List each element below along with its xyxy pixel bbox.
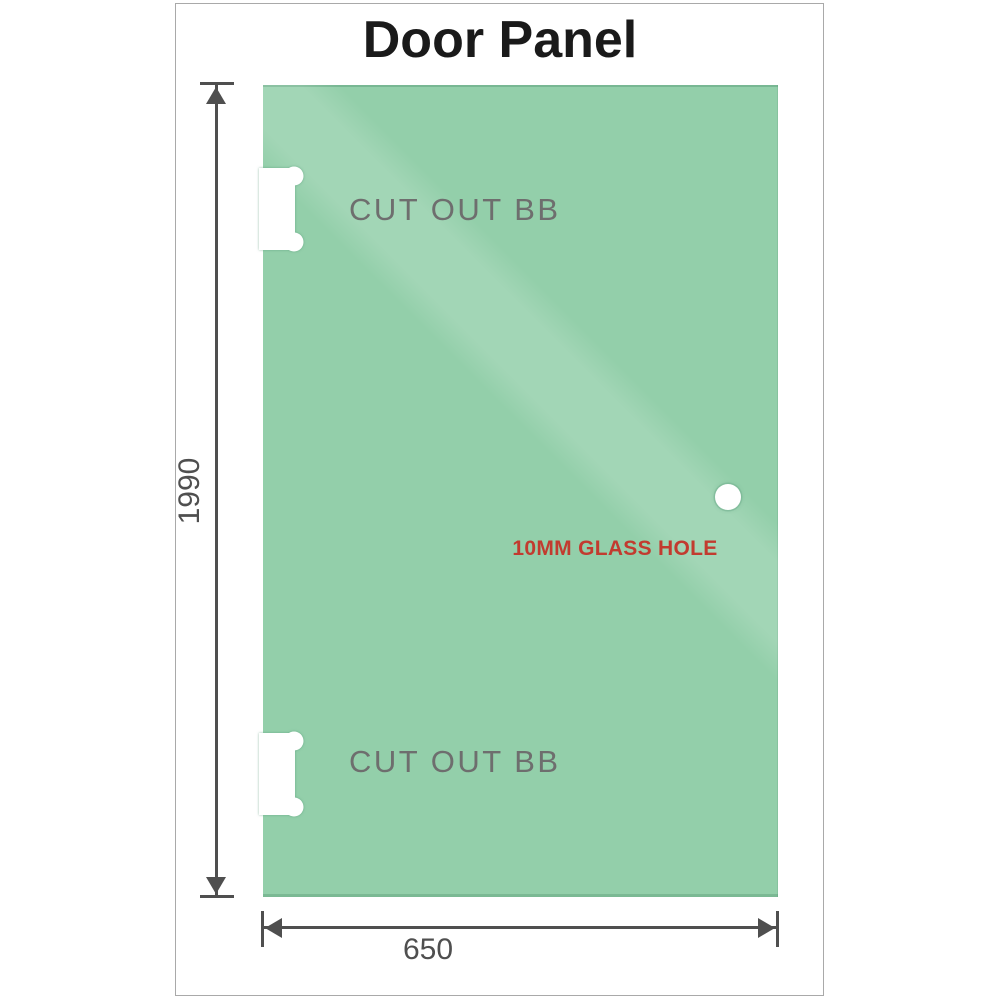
- cutout-label-bottom: CUT OUT BB: [349, 744, 609, 780]
- dim-tick-bottom: [200, 895, 234, 898]
- arrow-right-icon: [758, 918, 775, 938]
- cutout-label-top: CUT OUT BB: [349, 192, 609, 228]
- glass-hole: [715, 484, 741, 510]
- diagram-title: Door Panel: [175, 10, 825, 70]
- width-dimension-line: [262, 926, 777, 929]
- cutout-shape: [259, 167, 304, 252]
- height-dimension-line: [215, 84, 218, 897]
- hinge-cutout-top: [259, 166, 305, 252]
- hinge-cutout-bottom: [259, 731, 305, 817]
- arrow-left-icon: [265, 918, 282, 938]
- dim-tick-left: [261, 911, 264, 947]
- cutout-shape: [259, 732, 304, 817]
- height-dimension-label: 1990: [170, 431, 210, 551]
- arrow-up-icon: [206, 87, 226, 104]
- diagram-canvas: Door Panel CUT OUT BB CUT OUT BB 10MM GL…: [0, 0, 1000, 1000]
- glass-hole-label: 10MM GLASS HOLE: [505, 537, 725, 561]
- width-dimension-label: 650: [368, 933, 488, 967]
- arrow-down-icon: [206, 877, 226, 894]
- dim-tick-right: [776, 911, 779, 947]
